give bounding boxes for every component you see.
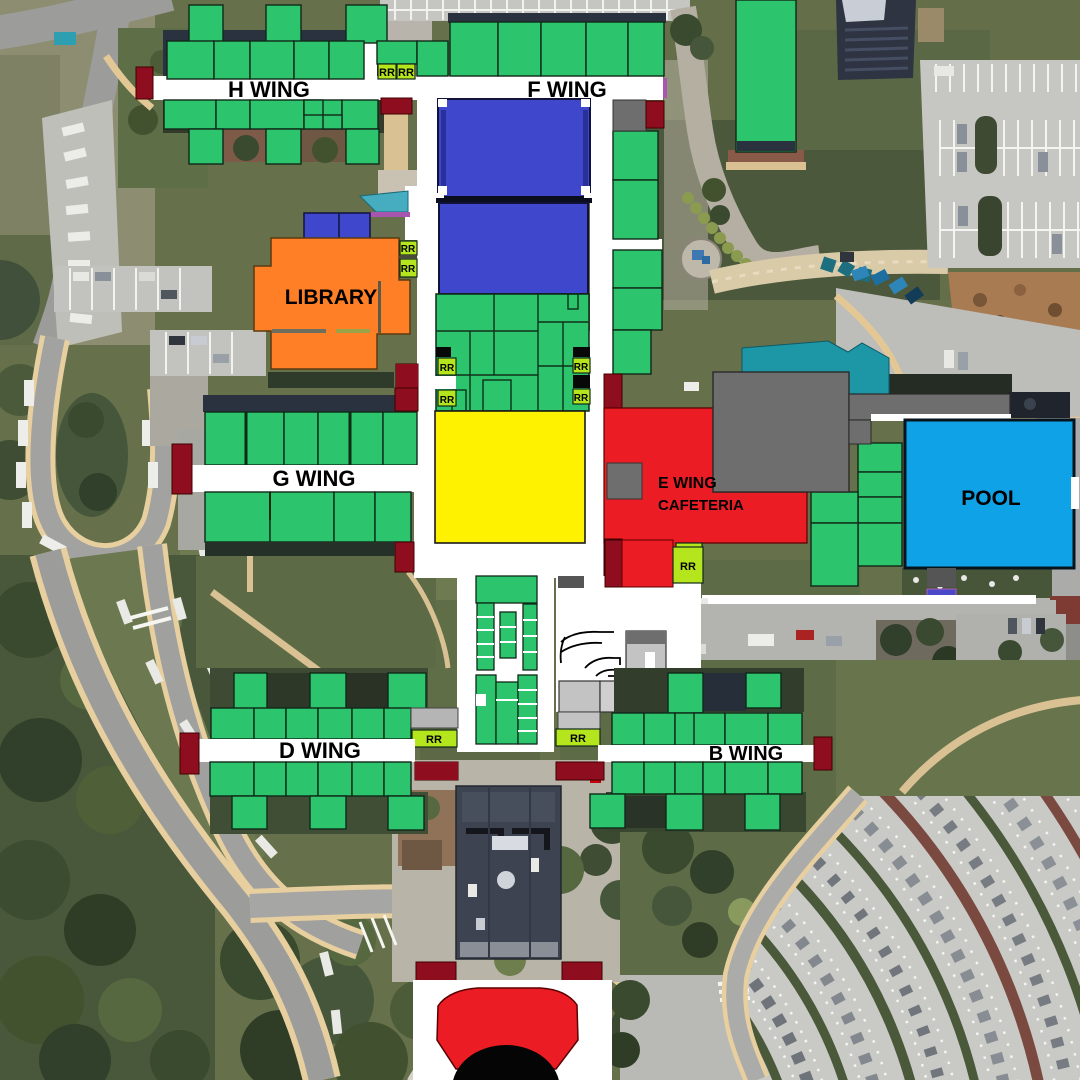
svg-text:RR: RR <box>401 264 416 275</box>
svg-text:RR: RR <box>440 395 455 406</box>
svg-text:RR: RR <box>440 363 455 374</box>
svg-text:H WING: H WING <box>228 77 310 102</box>
svg-text:RR: RR <box>574 393 589 404</box>
svg-text:D WING: D WING <box>279 738 361 763</box>
svg-text:LIBRARY: LIBRARY <box>285 286 378 309</box>
svg-text:G WING: G WING <box>272 466 355 491</box>
svg-text:E WING: E WING <box>658 475 717 492</box>
svg-text:RR: RR <box>398 67 414 79</box>
svg-text:RR: RR <box>574 362 589 373</box>
svg-text:POOL: POOL <box>961 487 1021 510</box>
svg-text:RR: RR <box>680 561 696 573</box>
svg-text:RR: RR <box>426 734 442 746</box>
svg-text:RR: RR <box>401 244 416 255</box>
svg-text:RR: RR <box>379 67 395 79</box>
svg-text:RR: RR <box>570 733 586 745</box>
svg-text:F WING: F WING <box>527 77 606 102</box>
svg-text:CAFETERIA: CAFETERIA <box>658 497 744 514</box>
